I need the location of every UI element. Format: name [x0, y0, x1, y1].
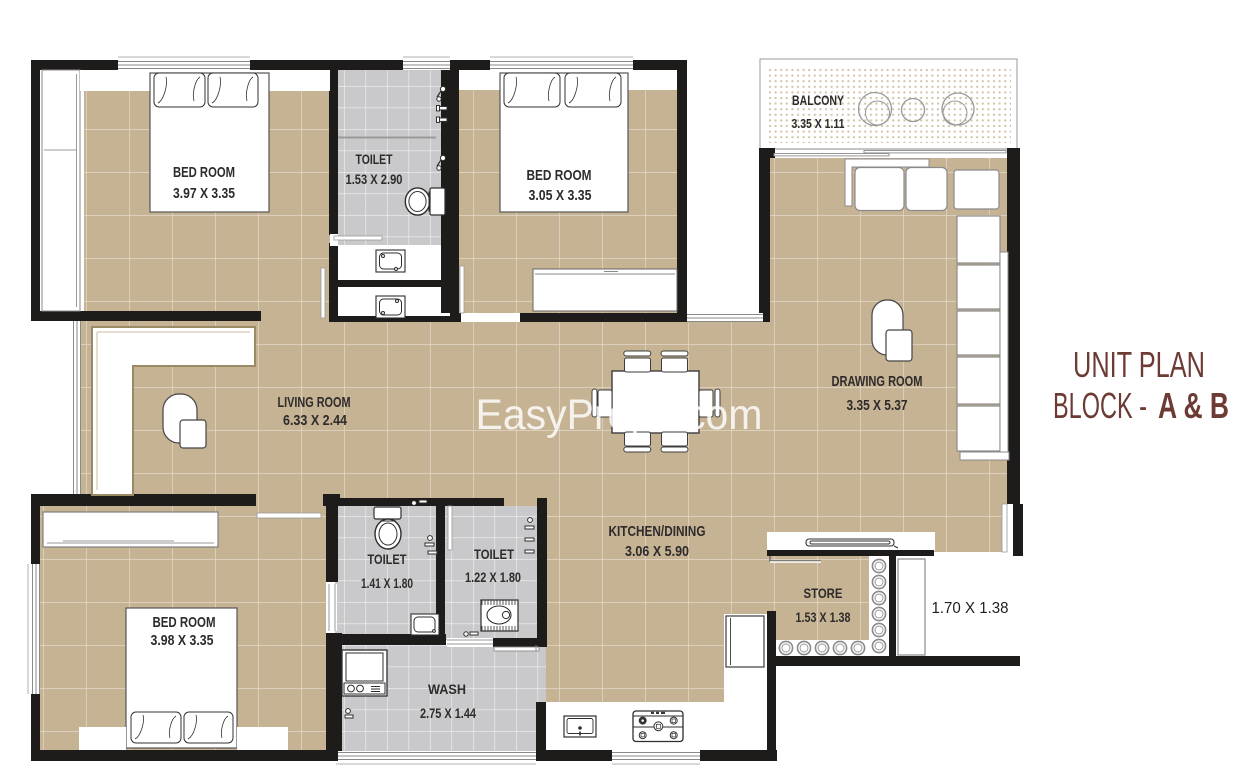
- svg-text:2.75 X 1.44: 2.75 X 1.44: [420, 706, 476, 721]
- svg-text:1.53 X 2.90: 1.53 X 2.90: [346, 172, 403, 187]
- svg-text:BED ROOM: BED ROOM: [527, 167, 592, 184]
- svg-text:BED ROOM: BED ROOM: [173, 164, 235, 181]
- svg-text:6.33 X 2.44: 6.33 X 2.44: [283, 413, 347, 429]
- svg-text:TOILET: TOILET: [368, 551, 407, 567]
- svg-text:1.22 X 1.80: 1.22 X 1.80: [465, 570, 521, 585]
- svg-text:TOILET: TOILET: [356, 151, 393, 167]
- svg-text:3.35 X 1.11: 3.35 X 1.11: [792, 117, 845, 131]
- svg-text:3.98 X 3.35: 3.98 X 3.35: [151, 633, 214, 649]
- svg-text:BALCONY: BALCONY: [792, 93, 844, 108]
- svg-text:DRAWING ROOM: DRAWING ROOM: [832, 373, 923, 390]
- svg-text:3.97 X 3.35: 3.97 X 3.35: [173, 186, 235, 202]
- svg-text:EasyProps.com: EasyProps.com: [476, 391, 763, 439]
- svg-text:BED ROOM: BED ROOM: [153, 614, 216, 631]
- svg-text:3.35 X 5.37: 3.35 X 5.37: [847, 398, 908, 414]
- svg-text:3.06 X 5.90: 3.06 X 5.90: [625, 544, 689, 560]
- svg-text:KITCHEN/DINING: KITCHEN/DINING: [609, 523, 706, 540]
- svg-text:1.53 X 1.38: 1.53 X 1.38: [796, 610, 851, 625]
- svg-text:3.05 X 3.35: 3.05 X 3.35: [529, 188, 592, 204]
- svg-text:1.41 X 1.80: 1.41 X 1.80: [361, 576, 413, 591]
- svg-text:LIVING ROOM: LIVING ROOM: [278, 394, 351, 411]
- svg-text:BLOCK -: BLOCK -: [1053, 385, 1147, 426]
- svg-text:TOILET: TOILET: [474, 546, 514, 562]
- svg-text:UNIT PLAN: UNIT PLAN: [1073, 344, 1205, 385]
- svg-text:STORE: STORE: [804, 585, 843, 601]
- svg-text:1.70 X 1.38: 1.70 X 1.38: [932, 600, 1009, 617]
- svg-text:A & B: A & B: [1158, 385, 1229, 426]
- svg-text:WASH: WASH: [428, 681, 466, 697]
